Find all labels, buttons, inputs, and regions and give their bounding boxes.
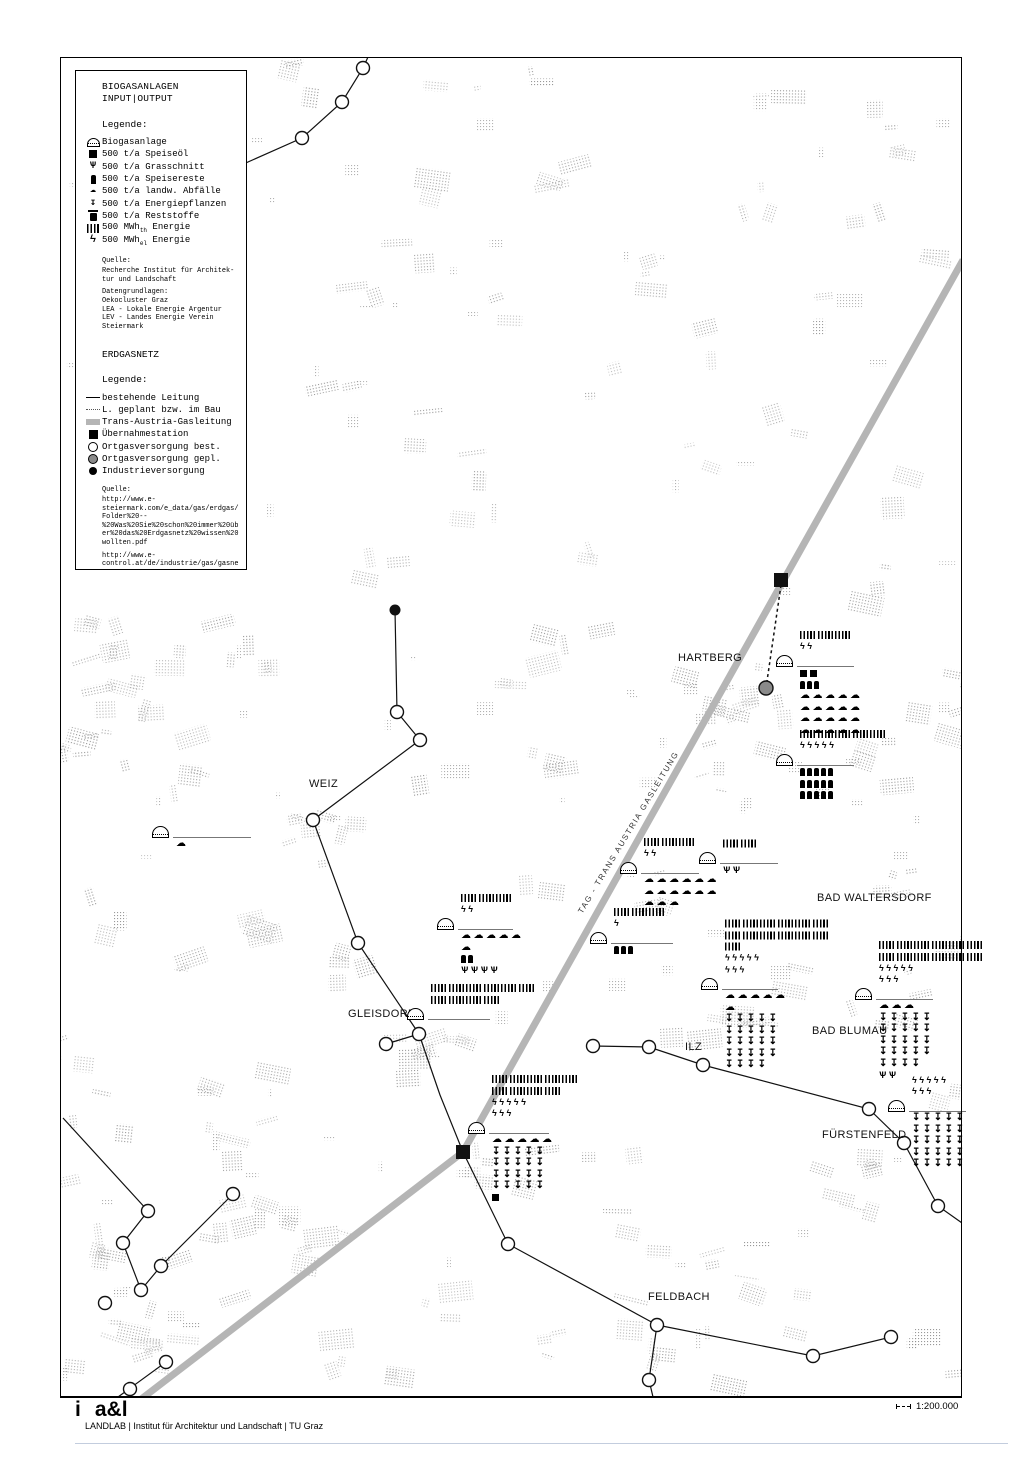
mwh-th-icon bbox=[479, 894, 494, 902]
mwh-th-icon bbox=[743, 920, 758, 928]
trans-austria-gasleitung bbox=[140, 260, 963, 1400]
mwh-th-icon bbox=[723, 840, 738, 848]
speisereste-icon bbox=[821, 791, 826, 799]
mwh-th-icon bbox=[813, 920, 828, 928]
plant-el-row: ϟϟϟ bbox=[912, 1087, 946, 1097]
plant-arrow-row: ↧↧↧↧↧ bbox=[912, 1125, 966, 1135]
ortgas-best-node bbox=[99, 1297, 112, 1310]
energiepflanzen-icon: ↧ bbox=[536, 1147, 544, 1157]
mwh-th-icon bbox=[510, 1087, 525, 1095]
plant-input-icons bbox=[614, 945, 673, 955]
plant-el-row: ϟϟϟ bbox=[879, 975, 982, 985]
daten-label: Datengrundlagen: bbox=[102, 288, 240, 297]
plant-el-row: ϟϟϟϟϟ bbox=[879, 963, 982, 973]
biogas-quelle-label: Quelle: bbox=[102, 257, 240, 266]
plant-baseline bbox=[407, 1008, 490, 1020]
abfaelle-icon: ☁ bbox=[850, 714, 860, 724]
ortgas-best-node bbox=[117, 1237, 130, 1250]
plant-arrow-row: ↧↧↧↧↧ bbox=[912, 1136, 966, 1146]
mwh-el-icon: ϟ bbox=[461, 905, 466, 914]
plant-el-row: ϟ bbox=[614, 919, 664, 929]
plant-pile-row: ☁☁☁☁☁ bbox=[725, 991, 785, 1001]
plant-th-row bbox=[879, 952, 982, 962]
abfaelle-icon: ☁ bbox=[511, 931, 521, 941]
legend-item: bestehende Leitung bbox=[84, 391, 240, 403]
energiepflanzen-icon: ↧ bbox=[934, 1113, 942, 1123]
legend-icon-cell bbox=[84, 430, 102, 439]
plant-input-icons: ☁☁☁☁☁☁☁☁☁☁☁☁☁☁☁ bbox=[644, 875, 717, 908]
energiepflanzen-icon: ↧ bbox=[758, 1060, 766, 1070]
abfaelle-icon: ☁ bbox=[800, 691, 810, 701]
plant-sq-row bbox=[492, 1193, 552, 1203]
legend-icon-cell bbox=[84, 175, 102, 184]
legend-item-label: 500 MWhth Energie bbox=[102, 222, 190, 234]
mwh-th-icon bbox=[818, 730, 833, 738]
plant-output-icons: ϟϟϟϟϟϟϟϟ bbox=[879, 940, 982, 986]
energiepflanzen-icon: ↧ bbox=[879, 1036, 887, 1046]
plant-el-row: ϟϟϟϟϟ bbox=[800, 741, 885, 751]
abfaelle-icon: ☁ bbox=[892, 1001, 902, 1011]
energiepflanzen-icon: ↧ bbox=[923, 1159, 931, 1169]
speisereste-icon bbox=[614, 946, 619, 954]
legend-icon-cell: ↧ bbox=[84, 199, 102, 209]
mwh-el-icon: ϟ bbox=[934, 1076, 939, 1085]
energiepflanzen-icon: ↧ bbox=[725, 1026, 733, 1036]
biogas-plant-cluster: ϟϟ☁☁☁☁☁☁ѰѰѰѰ bbox=[437, 918, 521, 977]
legend-icon-cell bbox=[84, 409, 102, 410]
plant-output-icons: ϟ bbox=[614, 907, 664, 930]
mwh-th-icon bbox=[743, 931, 758, 939]
energiepflanzen-icon: ↧ bbox=[912, 1036, 920, 1046]
speiseoel-icon bbox=[800, 670, 807, 677]
plant-th-row bbox=[725, 942, 828, 952]
mwh-th-icon bbox=[461, 894, 476, 902]
abfaelle-icon: ☁ bbox=[644, 875, 654, 885]
legend-icon-cell bbox=[84, 138, 102, 147]
plant-input-icons: ☁☁☁☁☁☁ѰѰѰѰ bbox=[461, 931, 521, 976]
biogasanlage-icon bbox=[620, 862, 637, 874]
abfaelle-icon: ☁ bbox=[707, 887, 717, 897]
mwh-el-icon: ϟ bbox=[754, 954, 759, 963]
plant-input-icons bbox=[800, 767, 854, 800]
energiepflanzen-icon: ↧ bbox=[503, 1158, 511, 1168]
plant-arrow-row: ↧↧↧↧↧ bbox=[912, 1159, 966, 1169]
mwh-el-icon: ϟ bbox=[90, 236, 96, 246]
plant-el-row: ϟϟϟϟϟ bbox=[725, 953, 828, 963]
plant-pile-row: ☁☁☁☁☁☁ bbox=[644, 875, 717, 885]
ortgas-best-node bbox=[414, 734, 427, 747]
ortgas-best-node bbox=[807, 1350, 820, 1363]
energiepflanzen-icon: ↧ bbox=[956, 1136, 964, 1146]
energiepflanzen-icon: ↧ bbox=[514, 1181, 522, 1191]
energiepflanzen-icon: ↧ bbox=[514, 1147, 522, 1157]
energiepflanzen-icon: ↧ bbox=[901, 1036, 909, 1046]
speisereste-icon bbox=[800, 681, 805, 689]
energiepflanzen-icon: ↧ bbox=[725, 1049, 733, 1059]
plant-pile-row: ☁☁☁☁☁ bbox=[492, 1135, 552, 1145]
mwh-el-icon: ϟ bbox=[829, 741, 834, 750]
speisereste-icon bbox=[814, 681, 819, 689]
plant-arrow-row: ↧↧↧↧ bbox=[725, 1060, 785, 1070]
legend-item-label: 500 t/a landw. Abfälle bbox=[102, 186, 221, 196]
biogasanlage-icon bbox=[590, 932, 607, 944]
abfaelle-icon: ☁ bbox=[694, 887, 704, 897]
logo-i: i bbox=[75, 1398, 81, 1421]
energiepflanzen-icon: ↧ bbox=[769, 1037, 777, 1047]
mwh-el-icon: ϟ bbox=[912, 1087, 917, 1096]
mwh-el-icon: ϟ bbox=[747, 954, 752, 963]
mwh-th-icon bbox=[818, 631, 833, 639]
energiepflanzen-icon: ↧ bbox=[769, 1026, 777, 1036]
legend-item-label: Trans-Austria-Gasleitung bbox=[102, 417, 232, 427]
plant-el-row: ϟϟϟ bbox=[492, 1109, 577, 1119]
mwh-el-icon: ϟ bbox=[919, 1087, 924, 1096]
mwh-th-icon bbox=[949, 941, 964, 949]
legend-item-label: L. geplant bzw. im Bau bbox=[102, 405, 221, 415]
mwh-el-icon: ϟ bbox=[894, 975, 899, 984]
mwh-el-icon: ϟ bbox=[886, 964, 891, 973]
legend-item: 500 t/a Speisereste bbox=[84, 173, 240, 185]
speisereste-icon bbox=[828, 768, 833, 776]
energiepflanzen-icon: ↧ bbox=[890, 1047, 898, 1057]
abfaelle-icon: ☁ bbox=[738, 991, 748, 1001]
mwh-el-icon: ϟ bbox=[521, 1098, 526, 1107]
biogas-plant-cluster: ϟϟϟϟϟϟϟϟ↧↧↧↧↧↧↧↧↧↧↧↧↧↧↧↧↧↧↧↧↧↧↧↧↧ bbox=[888, 1100, 966, 1171]
mwh-th-icon bbox=[800, 730, 815, 738]
abfaelle-icon: ☁ bbox=[725, 1003, 735, 1013]
abfaelle-icon: ☁ bbox=[669, 887, 679, 897]
speisereste-icon bbox=[91, 175, 96, 184]
speisereste-icon bbox=[800, 780, 805, 788]
ortgas-best-icon bbox=[88, 442, 98, 452]
legend-item: Trans-Austria-Gasleitung bbox=[84, 416, 240, 428]
speisereste-icon bbox=[628, 946, 633, 954]
energiepflanzen-icon: ↧ bbox=[923, 1036, 931, 1046]
biogasanlage-icon bbox=[776, 655, 793, 667]
abfaelle-icon: ☁ bbox=[800, 703, 810, 713]
energiepflanzen-icon: ↧ bbox=[525, 1158, 533, 1168]
plant-arrow-row: ↧↧↧↧↧ bbox=[879, 1013, 933, 1023]
energiepflanzen-icon: ↧ bbox=[912, 1059, 920, 1069]
mwh-th-icon bbox=[545, 1075, 560, 1083]
plant-baseline bbox=[699, 852, 778, 864]
mwh-th-icon bbox=[679, 838, 694, 846]
speisereste-icon bbox=[814, 768, 819, 776]
abfaelle-icon: ☁ bbox=[838, 691, 848, 701]
energiepflanzen-icon: ↧ bbox=[736, 1060, 744, 1070]
plant-output-icons: ϟϟϟϟϟϟϟϟ bbox=[725, 919, 828, 977]
energiepflanzen-icon: ↧ bbox=[912, 1125, 920, 1135]
plant-pile-row: ☁☁☁ bbox=[879, 1001, 933, 1011]
plant-th-row bbox=[800, 630, 850, 640]
mwh-th-icon bbox=[760, 931, 775, 939]
legend-item: L. geplant bzw. im Bau bbox=[84, 404, 240, 416]
mwh-el-icon: ϟ bbox=[815, 741, 820, 750]
plant-input-icons: ↧↧↧↧↧↧↧↧↧↧↧↧↧↧↧↧↧↧↧↧↧↧↧↧↧ bbox=[912, 1113, 966, 1169]
abfaelle-icon: ☁ bbox=[542, 1135, 552, 1145]
plant-el-row: ϟϟ bbox=[644, 849, 694, 859]
energiepflanzen-icon: ↧ bbox=[536, 1158, 544, 1168]
biogasanlage-icon bbox=[152, 826, 169, 838]
legend-item: 500 t/a Reststoffe bbox=[84, 210, 240, 222]
legend-item-label: Ortgasversorgung best. bbox=[102, 442, 221, 452]
legend-item-label: 500 t/a Energiepflanzen bbox=[102, 199, 226, 209]
abfaelle-icon: ☁ bbox=[813, 691, 823, 701]
energiepflanzen-icon: ↧ bbox=[492, 1147, 500, 1157]
uebernahmestation-node bbox=[774, 573, 788, 587]
speisereste-icon bbox=[800, 768, 805, 776]
energiepflanzen-icon: ↧ bbox=[912, 1013, 920, 1023]
mwh-th-icon bbox=[644, 838, 659, 846]
mwh-th-icon bbox=[649, 908, 664, 916]
grasschnitt-icon: Ѱ bbox=[889, 1071, 896, 1080]
energiepflanzen-icon: ↧ bbox=[725, 1037, 733, 1047]
footer-rule bbox=[75, 1443, 1008, 1444]
energiepflanzen-icon: ↧ bbox=[503, 1147, 511, 1157]
plant-pile-row: ☁☁☁☁☁☁ bbox=[644, 887, 717, 897]
grasschnitt-icon: Ѱ bbox=[879, 1071, 886, 1080]
mwh-th-icon bbox=[510, 1075, 525, 1083]
mwh-th-icon bbox=[496, 894, 511, 902]
legend-item-label: 500 t/a Grasschnitt bbox=[102, 162, 205, 172]
mwh-el-icon: ϟ bbox=[800, 741, 805, 750]
mwh-th-icon bbox=[449, 996, 464, 1004]
ortgas-best-node bbox=[352, 937, 365, 950]
energiepflanzen-icon: ↧ bbox=[492, 1158, 500, 1168]
energiepflanzen-icon: ↧ bbox=[934, 1125, 942, 1135]
plant-divider-line bbox=[797, 765, 854, 766]
abfaelle-icon: ☁ bbox=[499, 931, 509, 941]
ortgas-best-node bbox=[413, 1028, 426, 1041]
mwh-el-icon: ϟ bbox=[912, 1076, 917, 1085]
ortgas-best-node bbox=[336, 96, 349, 109]
speisereste-icon bbox=[807, 791, 812, 799]
energiepflanzen-icon: ↧ bbox=[503, 1170, 511, 1180]
mwh-th-icon bbox=[932, 941, 947, 949]
plant-baseline bbox=[701, 978, 785, 990]
mwh-el-icon: ϟ bbox=[886, 975, 891, 984]
plant-arrow-row: ↧↧↧↧↧ bbox=[492, 1181, 552, 1191]
mwh-el-icon: ϟ bbox=[499, 1098, 504, 1107]
plant-pile-row: ☁ bbox=[461, 943, 521, 953]
ortgas-best-node bbox=[643, 1041, 656, 1054]
legend-item-label: 500 MWhel Energie bbox=[102, 235, 190, 247]
plant-th-row bbox=[723, 839, 756, 849]
mwh-th-icon bbox=[778, 920, 793, 928]
abfaelle-icon: ☁ bbox=[707, 875, 717, 885]
mwh-el-icon: ϟ bbox=[901, 964, 906, 973]
legend-item-label: Übernahmestation bbox=[102, 429, 188, 439]
plant-bottle-row bbox=[800, 767, 854, 777]
biogas-plant-cluster: ϟϟ☁☁☁☁☁☁☁☁☁☁☁☁☁☁☁☁☁☁☁☁ bbox=[776, 655, 860, 737]
ortgas-best-node bbox=[124, 1383, 137, 1396]
energiepflanzen-icon: ↧ bbox=[945, 1159, 953, 1169]
energiepflanzen-icon: ↧ bbox=[725, 1060, 733, 1070]
mwh-th-icon bbox=[879, 953, 894, 961]
scale-bar-icon bbox=[896, 1404, 911, 1409]
plant-arrow-row: ↧↧↧↧↧ bbox=[879, 1036, 933, 1046]
mwh-el-icon: ϟ bbox=[927, 1076, 932, 1085]
mwh-th-icon bbox=[725, 931, 740, 939]
plant-bottle-row bbox=[800, 790, 854, 800]
grasschnitt-icon: Ѱ bbox=[90, 162, 96, 172]
mwh-th-icon bbox=[741, 840, 756, 848]
energiepflanzen-icon: ↧ bbox=[901, 1013, 909, 1023]
legend-icon-cell bbox=[84, 454, 102, 464]
plant-th-row bbox=[725, 930, 828, 940]
erdgas-legend-items: bestehende LeitungL. geplant bzw. im Bau… bbox=[84, 391, 240, 477]
energiepflanzen-icon: ↧ bbox=[769, 1014, 777, 1024]
energiepflanzen-icon: ↧ bbox=[934, 1159, 942, 1169]
mwh-el-icon: ϟ bbox=[879, 975, 884, 984]
mwh-el-icon: ϟ bbox=[514, 1098, 519, 1107]
mwh-th-icon bbox=[431, 984, 446, 992]
abfaelle-icon: ☁ bbox=[775, 991, 785, 1001]
town-label-gleisdorf: GLEISDORF bbox=[348, 1008, 415, 1020]
plant-input-icons: ☁ bbox=[176, 839, 251, 849]
energiepflanzen-icon: ↧ bbox=[912, 1047, 920, 1057]
plant-output-icons: ϟϟϟϟϟϟϟϟ bbox=[492, 1074, 577, 1120]
ortgas-best-node bbox=[391, 706, 404, 719]
town-label-bad-waltersdorf: BAD WALTERSDORF bbox=[817, 892, 932, 904]
energiepflanzen-icon: ↧ bbox=[536, 1170, 544, 1180]
biogas-plant-cluster: ϟϟϟϟϟϟϟϟ☁☁☁↧↧↧↧↧↧↧↧↧↧↧↧↧↧↧↧↧↧↧↧↧↧↧↧ѰѰ bbox=[855, 988, 933, 1082]
industrieversorgung-node bbox=[390, 605, 401, 616]
plant-th-row bbox=[879, 940, 982, 950]
mwh-th-icon bbox=[545, 1087, 560, 1095]
energiepflanzen-icon: ↧ bbox=[923, 1013, 931, 1023]
energiepflanzen-icon: ↧ bbox=[758, 1026, 766, 1036]
bestehende-leitung-icon bbox=[86, 397, 100, 398]
mwh-th-icon bbox=[914, 941, 929, 949]
mwh-th-icon bbox=[466, 984, 481, 992]
energiepflanzen-icon: ↧ bbox=[912, 1136, 920, 1146]
speisereste-icon bbox=[821, 780, 826, 788]
mwh-th-icon bbox=[800, 631, 815, 639]
abfaelle-icon: ☁ bbox=[505, 1135, 515, 1145]
ortgas-best-node bbox=[643, 1374, 656, 1387]
ortgas-best-node bbox=[357, 62, 370, 75]
energiepflanzen-icon: ↧ bbox=[912, 1159, 920, 1169]
town-label-ilz: ILZ bbox=[685, 1041, 702, 1053]
plant-output-icons: ϟϟϟϟϟ bbox=[800, 729, 885, 752]
abfaelle-icon: ☁ bbox=[474, 931, 484, 941]
mwh-th-icon bbox=[725, 943, 740, 951]
abfaelle-icon: ☁ bbox=[850, 703, 860, 713]
plant-divider-line bbox=[797, 666, 854, 667]
energiepflanzen-icon: ↧ bbox=[923, 1024, 931, 1034]
daten-text: Oekocluster GrazLEA - Lokale Energie Arg… bbox=[102, 297, 240, 331]
speisereste-icon bbox=[814, 791, 819, 799]
mwh-el-icon: ϟ bbox=[507, 1109, 512, 1118]
grasschnitt-icon: Ѱ bbox=[471, 966, 478, 975]
energiepflanzen-icon: ↧ bbox=[901, 1047, 909, 1057]
legend-title-line2: INPUT|OUTPUT bbox=[102, 93, 240, 105]
abfaelle-icon: ☁ bbox=[657, 875, 667, 885]
mwh-el-icon: ϟ bbox=[732, 954, 737, 963]
abfaelle-icon: ☁ bbox=[461, 943, 471, 953]
abfaelle-icon: ☁ bbox=[800, 714, 810, 724]
mwh-th-icon bbox=[897, 953, 912, 961]
legend-icon-cell bbox=[84, 150, 102, 158]
plant-baseline bbox=[590, 932, 673, 944]
energiepflanzen-icon: ↧ bbox=[769, 1049, 777, 1059]
energiepflanzen-icon: ↧ bbox=[758, 1014, 766, 1024]
energiepflanzen-icon: ↧ bbox=[956, 1148, 964, 1158]
abfaelle-icon: ☁ bbox=[725, 991, 735, 1001]
plant-arrow-row: ↧↧↧↧↧ bbox=[725, 1037, 785, 1047]
energiepflanzen-icon: ↧ bbox=[912, 1113, 920, 1123]
legend-item: 500 t/a Speiseöl bbox=[84, 148, 240, 160]
energiepflanzen-icon: ↧ bbox=[879, 1059, 887, 1069]
energiepflanzen-icon: ↧ bbox=[923, 1047, 931, 1057]
ortgas-gepl-icon bbox=[88, 454, 98, 464]
landlab-logo: ia&l bbox=[75, 1398, 128, 1422]
plant-output-icons: ϟϟ bbox=[644, 837, 694, 860]
plant-th-row bbox=[461, 893, 511, 903]
legend-item-label: Industrieversorgung bbox=[102, 466, 205, 476]
mwh-el-icon: ϟ bbox=[740, 954, 745, 963]
grasschnitt-icon: Ѱ bbox=[733, 866, 740, 875]
plant-sq-row bbox=[800, 668, 860, 678]
energiepflanzen-icon: ↧ bbox=[879, 1047, 887, 1057]
plant-arrow-row: ↧↧↧↧↧ bbox=[492, 1158, 552, 1168]
plant-output-icons: ϟϟϟϟϟϟϟϟ bbox=[912, 1075, 946, 1098]
footer-credit: LANDLAB | Institut für Architektur und L… bbox=[85, 1421, 323, 1431]
abfaelle-icon: ☁ bbox=[486, 931, 496, 941]
speisereste-icon bbox=[621, 946, 626, 954]
energiepflanzen-icon: ↧ bbox=[736, 1026, 744, 1036]
mwh-th-icon bbox=[519, 984, 534, 992]
plant-pile-row: ☁☁☁☁☁ bbox=[461, 931, 521, 941]
speisereste-icon bbox=[828, 780, 833, 788]
energiepflanzen-icon: ↧ bbox=[912, 1024, 920, 1034]
abfaelle-icon: ☁ bbox=[825, 714, 835, 724]
biogasanlage-icon bbox=[437, 918, 454, 930]
ortgas-best-node bbox=[227, 1188, 240, 1201]
energiepflanzen-icon: ↧ bbox=[912, 1148, 920, 1158]
mwh-th-icon bbox=[484, 984, 499, 992]
legend-item-label: Ortgasversorgung gepl. bbox=[102, 454, 221, 464]
legend-icon-cell bbox=[84, 442, 102, 452]
energiepflanzen-icon: ↧ bbox=[747, 1060, 755, 1070]
grasschnitt-icon: Ѱ bbox=[723, 866, 730, 875]
plant-input-icons: ☁☁☁☁☁☁☁☁☁☁☁☁☁☁☁☁☁☁☁☁ bbox=[800, 668, 860, 736]
erdgas-url-2: http://www.e-control.at/de/industrie/gas… bbox=[102, 552, 240, 570]
energiepflanzen-icon: ↧ bbox=[725, 1014, 733, 1024]
energiepflanzen-icon: ↧ bbox=[879, 1024, 887, 1034]
mwh-th-icon bbox=[449, 984, 464, 992]
mwh-el-icon: ϟ bbox=[822, 741, 827, 750]
legend-item: Ortgasversorgung best. bbox=[84, 441, 240, 453]
abfaelle-icon: ☁ bbox=[879, 1001, 889, 1011]
reststoffe-icon bbox=[90, 213, 97, 221]
erdgas-title: ERDGASNETZ bbox=[102, 349, 240, 360]
ortgas-best-node bbox=[587, 1040, 600, 1053]
logo-al: a&l bbox=[95, 1398, 128, 1421]
energiepflanzen-icon: ↧ bbox=[890, 1059, 898, 1069]
abfaelle-icon: ☁ bbox=[904, 1001, 914, 1011]
speisereste-icon bbox=[807, 780, 812, 788]
speisereste-icon bbox=[800, 791, 805, 799]
ortgas-best-node bbox=[863, 1103, 876, 1116]
energiepflanzen-icon: ↧ bbox=[901, 1059, 909, 1069]
mwh-el-icon: ϟ bbox=[800, 642, 805, 651]
energiepflanzen-icon: ↧ bbox=[736, 1049, 744, 1059]
mwh-th-icon bbox=[431, 996, 446, 1004]
energiepflanzen-icon: ↧ bbox=[525, 1147, 533, 1157]
mwh-th-icon bbox=[795, 920, 810, 928]
